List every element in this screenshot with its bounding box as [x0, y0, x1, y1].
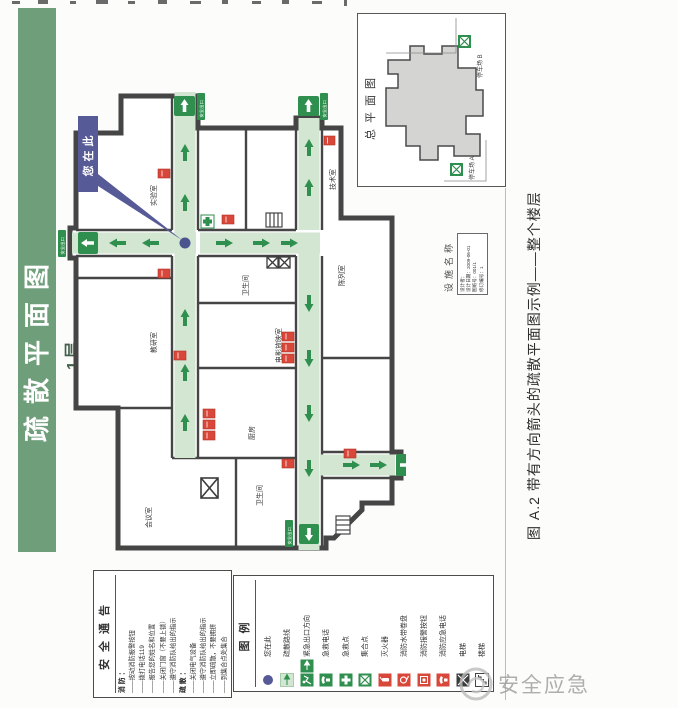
watermark-logo-icon [458, 666, 494, 702]
room-label: 卫生间 [255, 485, 264, 506]
exit-sign-right: 安全出口 [174, 93, 205, 120]
room-label: 卫生间 [241, 275, 250, 296]
floor-plan: 安全出口 安全出口 安全出口 安全出口 安全出口 [56, 88, 406, 558]
emergency-exit-direction-icon [300, 657, 314, 687]
exit-sign-lower-right: 安全出口 [298, 93, 328, 120]
elevator-icon [201, 478, 218, 498]
drawing-title-block: 设计者： 设计日期：2009-06-01 图纸号：001/1 修订编号：1 [457, 233, 488, 295]
notice-item: ——遵守消防队给出的指示 [169, 575, 179, 693]
watermark-text: 安全应急 [498, 669, 590, 699]
room-label: 电影放映室 [274, 328, 283, 363]
plan-title-banner: 疏散平面图 [18, 8, 56, 552]
first-aid-point-icon [201, 215, 214, 228]
legend-item: 消防水带卷盘 [395, 580, 415, 687]
title-block-line: 修订编号：1 [479, 236, 485, 292]
fire-extinguisher-icon [378, 657, 392, 687]
legend-item: 疏散路线 [278, 580, 298, 687]
you-are-here-dot-icon [180, 238, 191, 249]
facility-name-label: 设施名称 [442, 240, 455, 292]
svg-text:安全出口: 安全出口 [286, 527, 293, 545]
room-label: 厨房 [247, 426, 256, 440]
parking-b-label: 停车场 B [475, 54, 484, 78]
legend-item: 集合点 [356, 580, 376, 687]
exit-sign-left: 安全出口 [285, 520, 319, 547]
legend-item: 灭火器 [375, 580, 395, 687]
first-aid-point-icon [339, 657, 353, 687]
room-label: 实验室 [149, 185, 158, 206]
room-label: 会议室 [144, 507, 153, 528]
you-are-here-dot-icon [261, 657, 275, 687]
stairs-icon [336, 516, 350, 534]
safety-notice-title: 安全通告 [96, 575, 114, 693]
site-plan-drawing [358, 14, 504, 186]
notice-item: ——报告您的姓名和位置 [148, 575, 158, 693]
svg-text:安全出口: 安全出口 [198, 100, 205, 118]
legend-title: 图例 [236, 580, 254, 687]
fire-hose-reel-icon [397, 657, 411, 687]
notice-item: ——立即疏散，不要拥挤 [209, 575, 219, 693]
first-aid-phone-icon [319, 657, 333, 687]
legend-item: 消防报警按钮 [414, 580, 434, 687]
legend-item: 急救点 [336, 580, 356, 687]
legend-panel: 图例 您在此 疏散路线 紧急出口方向 [233, 575, 494, 692]
safety-notice-panel: 安全通告 消防： ——按动消防报警按钮 ——拨打电话119 ——报告您的姓名和位… [93, 570, 232, 698]
fire-emergency-phone-icon [436, 657, 450, 687]
scanned-page: { "banner": { "title": "疏散平面图", "floor_l… [0, 0, 678, 708]
notice-item: ——关闭电气设备 [189, 575, 199, 693]
fire-alarm-button-icon [417, 657, 431, 687]
escape-route-arrow-icon [280, 657, 294, 687]
notice-item: ——到集合点处集合 [220, 575, 230, 693]
elevator-icon [267, 257, 290, 268]
site-plan-inset: 总平面图 停车场 A 停车场 B [357, 13, 506, 187]
evacuation-section-heading: 疏散： [179, 575, 189, 693]
figure-caption: 图 A.2 带有方向箭头的疏散平面图示例——整个楼层 [524, 140, 544, 540]
notice-item: ——遵守消防队给出的指示 [199, 575, 209, 693]
svg-text:安全出口: 安全出口 [59, 237, 66, 255]
legend-item: 您在此 [258, 580, 278, 687]
room-label: 陈列室 [337, 265, 346, 286]
sheet-border-line [505, 188, 506, 700]
building-footprint [386, 46, 483, 160]
rotated-sheet: 疏散平面图 1层 [0, 0, 678, 708]
assembly-point-icon [450, 163, 463, 176]
notice-item: ——关闭门窗（不要上锁） [159, 575, 169, 693]
stairs-icon [266, 213, 282, 227]
divider [115, 575, 116, 693]
assembly-point-icon [458, 35, 471, 48]
svg-text:安全出口: 安全出口 [321, 100, 328, 118]
parking-a-label: 停车场 A [467, 156, 476, 180]
notice-item: ——拨打电话119 [138, 575, 148, 693]
fire-section-heading: 消防： [118, 575, 128, 693]
room-label: 教研室 [149, 332, 158, 353]
divider [255, 580, 256, 687]
assembly-point-icon [358, 657, 372, 687]
legend-item: 急救电话 [317, 580, 337, 687]
legend-item: 紧急出口方向 [297, 580, 317, 687]
you-are-here-label: 您在此 [81, 132, 95, 177]
legend-item: 消防应急电话 [434, 580, 454, 687]
watermark: 安全应急 [458, 666, 590, 702]
plan-title: 疏散平面图 [22, 252, 52, 442]
room-label: 技术室 [328, 169, 337, 190]
notice-item: ——按动消防报警按钮 [128, 575, 138, 693]
exit-sign-bottom: 安全出口 [396, 452, 406, 479]
